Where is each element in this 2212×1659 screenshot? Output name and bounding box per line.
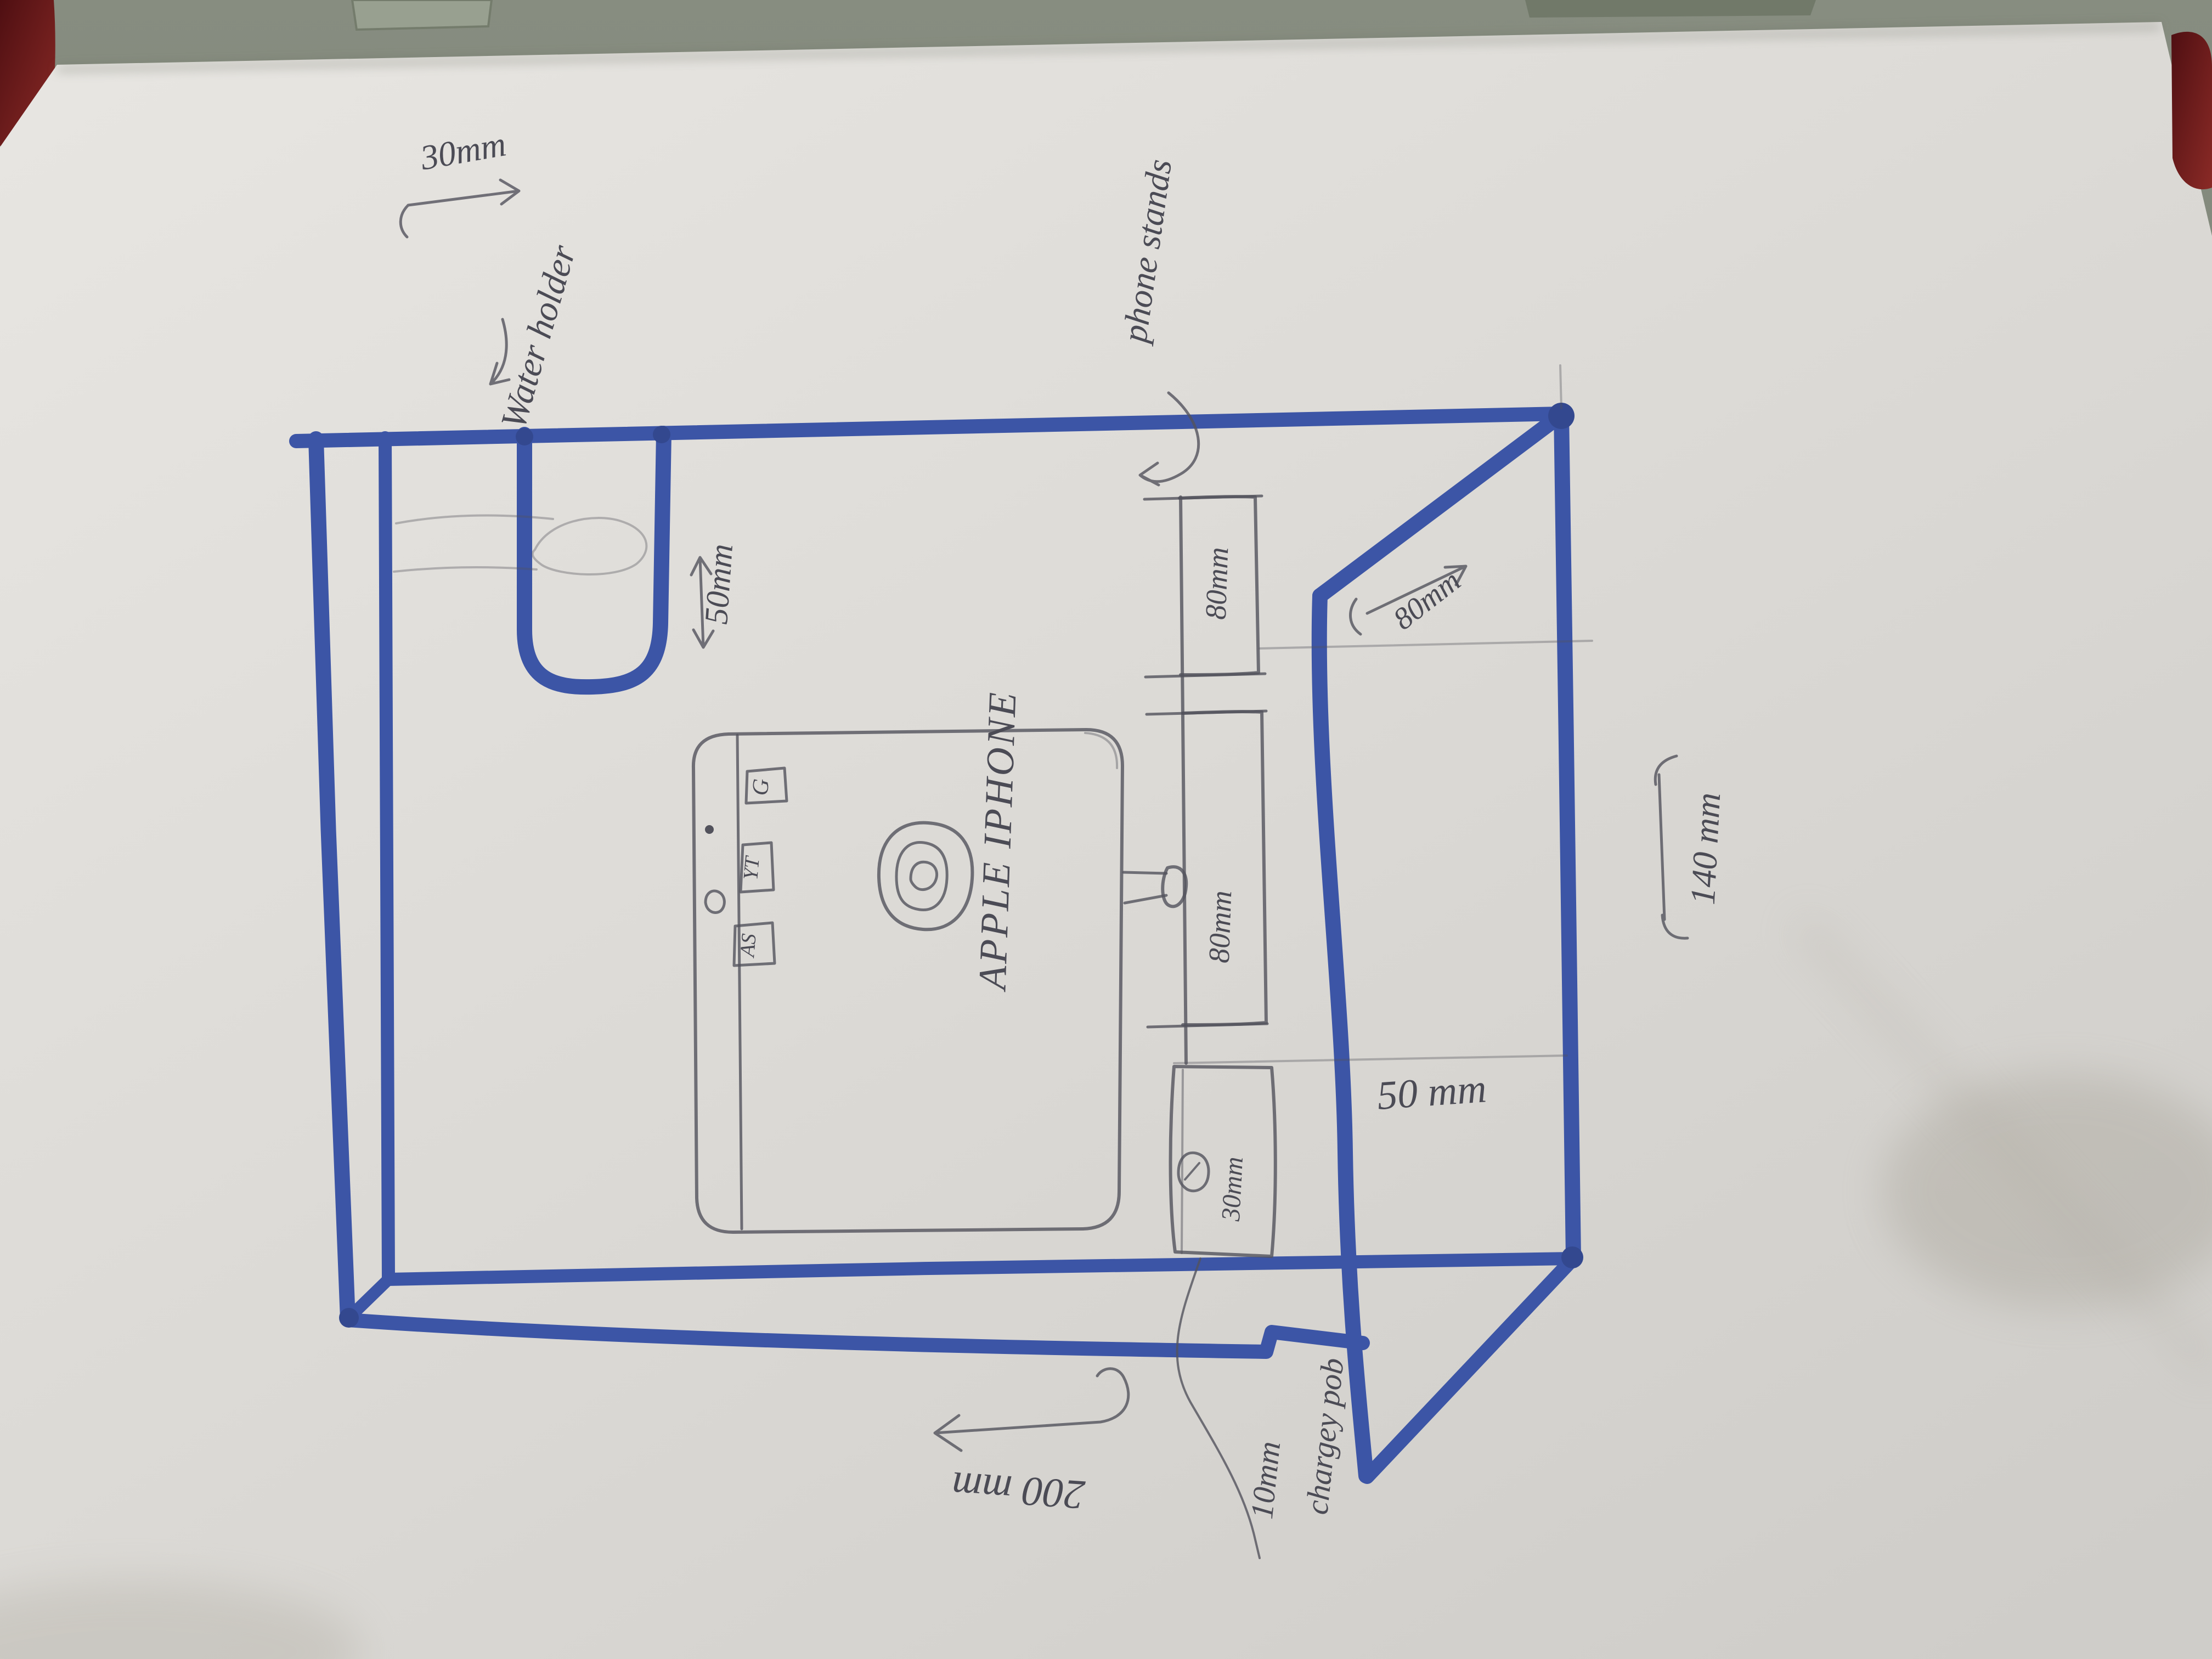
label-side-width: 140 mm bbox=[1683, 792, 1728, 906]
app-icon-yt-label: YT bbox=[739, 854, 764, 881]
label-bar-upper: 80mm bbox=[1199, 546, 1235, 620]
app-icon-g-label: G bbox=[748, 778, 774, 797]
app-icon-as-label: AS bbox=[736, 933, 761, 960]
phone-camera-dot-icon bbox=[705, 825, 714, 834]
sketch-canvas: Water holder 30mm 50mm phone stands 80mm… bbox=[0, 0, 2212, 1659]
red-object-right bbox=[2171, 32, 2212, 189]
marker-blob-bottom-left bbox=[339, 1308, 359, 1328]
label-pod-gap: 50 mm bbox=[1375, 1066, 1488, 1119]
label-notch-depth: 50mm bbox=[698, 543, 740, 625]
label-pod-width: 30mm bbox=[1216, 1156, 1249, 1222]
marker-left-inner-edge bbox=[385, 438, 388, 1278]
marker-blob-bottom-right bbox=[1561, 1246, 1583, 1268]
gray-object bbox=[352, 0, 492, 30]
label-base-width: 200 mm bbox=[950, 1463, 1086, 1519]
marker-blob-notch-right bbox=[653, 426, 670, 443]
construction-line-corner bbox=[1560, 365, 1561, 408]
photo-of-hand-drawn-sketch: Water holder 30mm 50mm phone stands 80mm… bbox=[0, 0, 2212, 1659]
table-edge-shadow bbox=[1525, 0, 1816, 18]
label-bar-lower: 80mm bbox=[1203, 890, 1238, 963]
